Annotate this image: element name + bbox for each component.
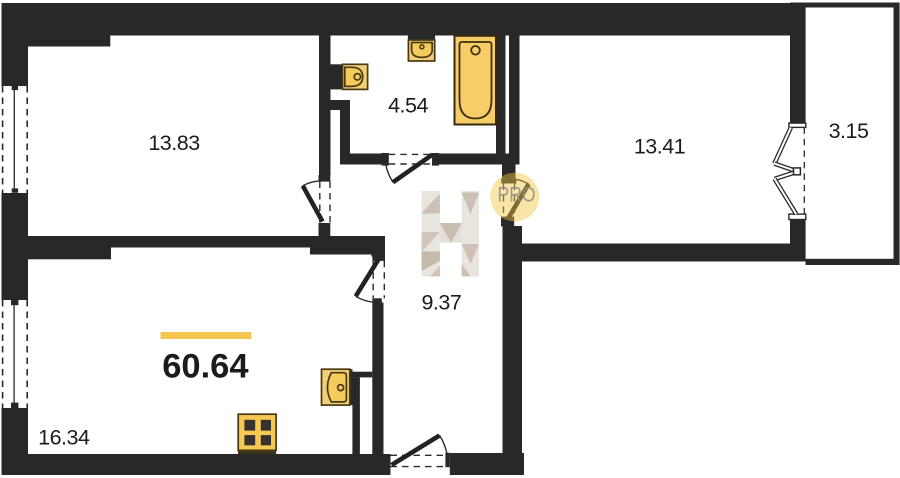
svg-text:4.54: 4.54 — [388, 94, 428, 118]
svg-text:PRO: PRO — [498, 183, 536, 207]
svg-text:13.41: 13.41 — [634, 134, 685, 158]
svg-text:16.34: 16.34 — [38, 425, 90, 449]
svg-text:3.15: 3.15 — [829, 119, 869, 143]
svg-text:60.64: 60.64 — [162, 347, 248, 385]
svg-text:9.37: 9.37 — [421, 290, 461, 314]
svg-text:13.83: 13.83 — [148, 131, 200, 155]
